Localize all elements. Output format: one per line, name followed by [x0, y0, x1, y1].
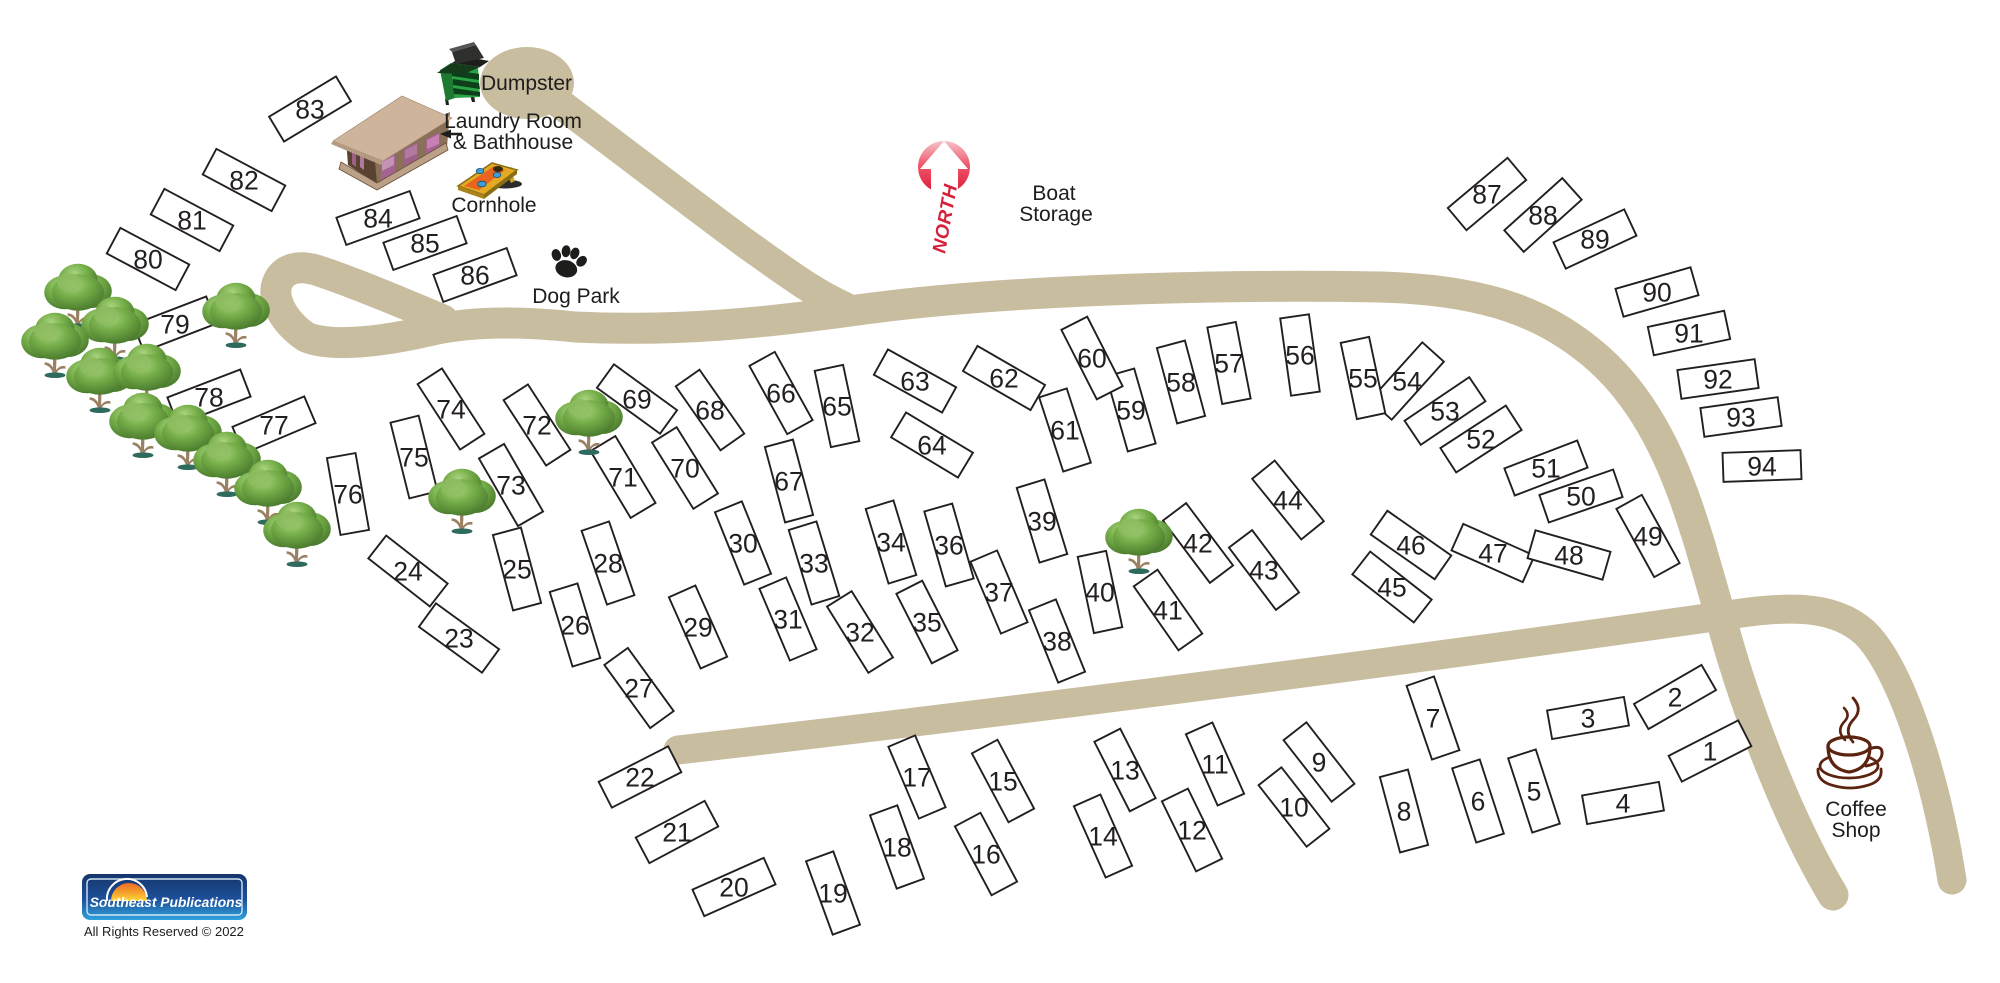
svg-text:17: 17	[902, 762, 931, 792]
svg-text:69: 69	[622, 384, 651, 414]
svg-text:All Rights Reserved © 2022: All Rights Reserved © 2022	[84, 924, 244, 939]
svg-text:15: 15	[988, 766, 1017, 796]
svg-text:27: 27	[624, 673, 653, 703]
svg-text:8: 8	[1397, 796, 1412, 826]
svg-text:6: 6	[1471, 786, 1486, 816]
svg-text:46: 46	[1396, 530, 1425, 560]
svg-text:Shop: Shop	[1831, 819, 1880, 842]
svg-text:79: 79	[160, 309, 189, 339]
svg-text:1: 1	[1703, 736, 1718, 766]
svg-text:84: 84	[363, 203, 392, 233]
svg-text:3: 3	[1581, 703, 1596, 733]
svg-text:92: 92	[1703, 364, 1732, 394]
svg-text:25: 25	[502, 554, 531, 584]
svg-text:31: 31	[773, 604, 802, 634]
svg-text:82: 82	[229, 165, 258, 195]
svg-text:13: 13	[1110, 755, 1139, 785]
svg-text:10: 10	[1279, 792, 1308, 822]
svg-text:2: 2	[1668, 682, 1683, 712]
svg-text:34: 34	[876, 527, 905, 557]
svg-text:76: 76	[333, 479, 362, 509]
svg-text:67: 67	[774, 466, 803, 496]
svg-text:33: 33	[799, 548, 828, 578]
svg-text:61: 61	[1050, 415, 1079, 445]
svg-text:90: 90	[1642, 277, 1671, 307]
svg-text:53: 53	[1430, 396, 1459, 426]
svg-text:Storage: Storage	[1019, 203, 1093, 226]
svg-text:9: 9	[1312, 747, 1327, 777]
svg-text:16: 16	[971, 839, 1000, 869]
svg-text:85: 85	[410, 228, 439, 258]
svg-text:Coffee: Coffee	[1825, 798, 1887, 821]
svg-text:39: 39	[1027, 506, 1056, 536]
svg-text:70: 70	[670, 453, 699, 483]
svg-text:63: 63	[900, 366, 929, 396]
svg-text:21: 21	[662, 817, 691, 847]
svg-text:38: 38	[1042, 626, 1071, 656]
svg-text:91: 91	[1674, 318, 1703, 348]
svg-text:87: 87	[1472, 179, 1501, 209]
svg-text:7: 7	[1426, 703, 1441, 733]
svg-text:23: 23	[444, 623, 473, 653]
svg-text:83: 83	[295, 94, 324, 124]
svg-text:94: 94	[1747, 451, 1776, 481]
svg-text:51: 51	[1531, 453, 1560, 483]
svg-text:75: 75	[399, 442, 428, 472]
svg-text:65: 65	[822, 391, 851, 421]
svg-text:72: 72	[522, 410, 551, 440]
svg-text:77: 77	[259, 410, 288, 440]
svg-text:73: 73	[496, 470, 525, 500]
svg-text:52: 52	[1466, 424, 1495, 454]
svg-text:68: 68	[695, 395, 724, 425]
svg-text:88: 88	[1528, 200, 1557, 230]
svg-text:24: 24	[393, 556, 422, 586]
svg-text:47: 47	[1478, 538, 1507, 568]
svg-text:48: 48	[1554, 540, 1583, 570]
svg-text:57: 57	[1214, 348, 1243, 378]
svg-text:56: 56	[1285, 340, 1314, 370]
svg-text:62: 62	[989, 363, 1018, 393]
svg-text:29: 29	[683, 612, 712, 642]
svg-text:41: 41	[1153, 595, 1182, 625]
svg-text:49: 49	[1633, 521, 1662, 551]
svg-text:28: 28	[593, 548, 622, 578]
svg-text:54: 54	[1392, 366, 1421, 396]
svg-text:5: 5	[1527, 776, 1542, 806]
svg-text:45: 45	[1377, 572, 1406, 602]
svg-text:42: 42	[1183, 528, 1212, 558]
svg-text:80: 80	[133, 244, 162, 274]
svg-text:Dumpster: Dumpster	[481, 72, 572, 95]
svg-text:32: 32	[845, 617, 874, 647]
svg-text:14: 14	[1088, 821, 1117, 851]
svg-text:86: 86	[460, 260, 489, 290]
svg-text:22: 22	[625, 762, 654, 792]
svg-text:18: 18	[882, 832, 911, 862]
svg-text:66: 66	[766, 378, 795, 408]
svg-text:55: 55	[1348, 363, 1377, 393]
svg-text:93: 93	[1726, 402, 1755, 432]
svg-text:Laundry Room: Laundry Room	[444, 110, 582, 133]
svg-text:71: 71	[608, 462, 637, 492]
svg-text:26: 26	[560, 610, 589, 640]
svg-text:50: 50	[1566, 481, 1595, 511]
svg-text:4: 4	[1616, 788, 1631, 818]
svg-text:Dog Park: Dog Park	[532, 285, 620, 308]
svg-text:35: 35	[912, 607, 941, 637]
svg-text:64: 64	[917, 430, 946, 460]
svg-text:44: 44	[1273, 485, 1302, 515]
svg-text:Cornhole: Cornhole	[451, 194, 536, 217]
svg-text:37: 37	[984, 577, 1013, 607]
svg-text:12: 12	[1177, 815, 1206, 845]
svg-text:20: 20	[719, 872, 748, 902]
svg-text:40: 40	[1085, 577, 1114, 607]
svg-text:30: 30	[728, 528, 757, 558]
svg-text:43: 43	[1249, 555, 1278, 585]
svg-text:81: 81	[177, 205, 206, 235]
svg-text:60: 60	[1077, 343, 1106, 373]
svg-text:Southeast Publications: Southeast Publications	[90, 895, 243, 910]
svg-text:36: 36	[934, 530, 963, 560]
svg-text:Boat: Boat	[1032, 182, 1075, 205]
svg-text:11: 11	[1201, 749, 1229, 779]
svg-text:& Bathhouse: & Bathhouse	[453, 131, 573, 154]
svg-text:58: 58	[1166, 367, 1195, 397]
svg-text:59: 59	[1116, 395, 1145, 425]
svg-text:89: 89	[1580, 224, 1609, 254]
svg-text:74: 74	[436, 394, 465, 424]
svg-text:19: 19	[818, 878, 847, 908]
